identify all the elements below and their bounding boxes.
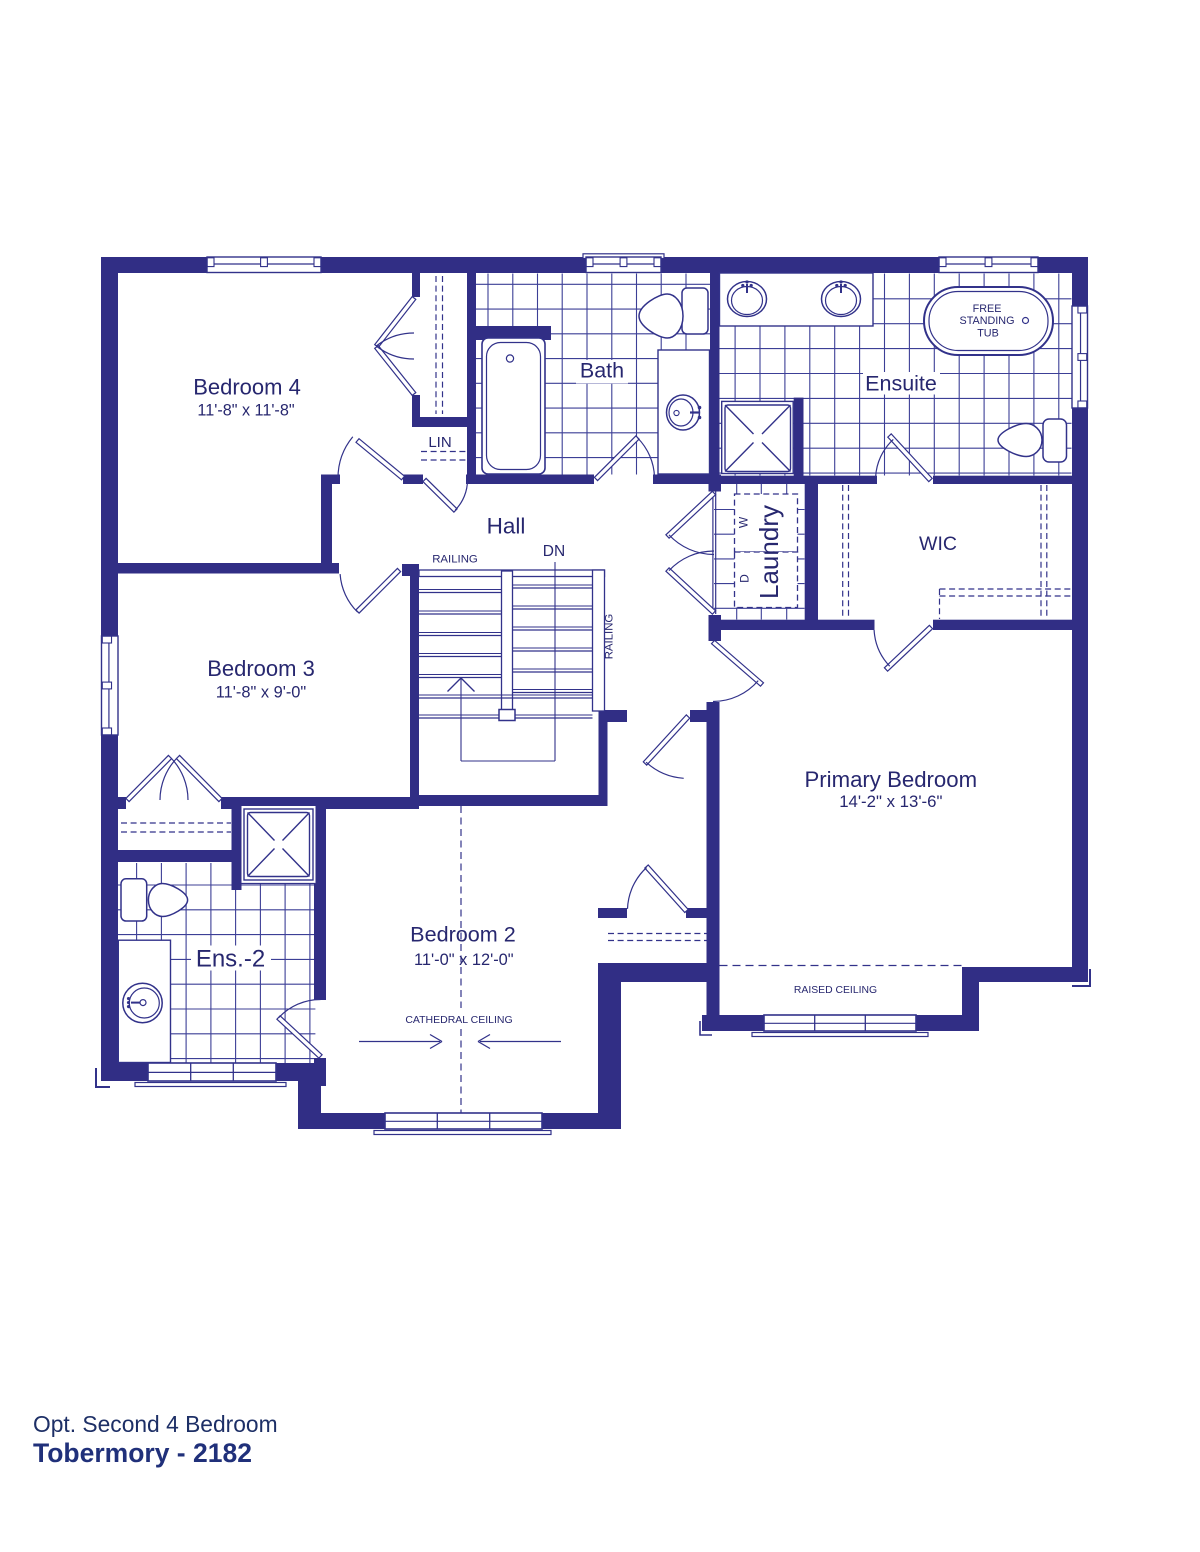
svg-text:14'-2" x 13'-6": 14'-2" x 13'-6"	[839, 792, 942, 811]
svg-text:Primary Bedroom: Primary Bedroom	[804, 767, 977, 792]
svg-text:Laundry: Laundry	[754, 505, 784, 599]
svg-text:WIC: WIC	[919, 533, 957, 555]
svg-text:Bedroom 2: Bedroom 2	[410, 922, 516, 947]
svg-text:RAILING: RAILING	[432, 553, 478, 565]
svg-text:11'-0" x 12'-0": 11'-0" x 12'-0"	[414, 951, 514, 969]
svg-text:RAISED CEILING: RAISED CEILING	[794, 985, 877, 996]
svg-text:Ens.-2: Ens.-2	[196, 946, 265, 973]
svg-text:Hall: Hall	[487, 514, 526, 539]
svg-text:DN: DN	[543, 543, 565, 560]
svg-text:W: W	[737, 516, 751, 528]
svg-text:11'-8" x 11'-8": 11'-8" x 11'-8"	[197, 402, 294, 420]
svg-text:11'-8" x 9'-0": 11'-8" x 9'-0"	[216, 683, 307, 701]
svg-text:Opt. Second 4 Bedroom: Opt. Second 4 Bedroom	[33, 1411, 278, 1437]
svg-text:Bath: Bath	[580, 359, 624, 383]
svg-text:FREE: FREE	[973, 303, 1002, 315]
svg-text:TUB: TUB	[977, 327, 999, 339]
svg-text:Bedroom 3: Bedroom 3	[207, 656, 315, 681]
svg-text:Ensuite: Ensuite	[865, 372, 937, 396]
svg-text:STANDING: STANDING	[960, 315, 1015, 327]
svg-text:Tobermory - 2182: Tobermory - 2182	[33, 1438, 252, 1468]
svg-text:D: D	[738, 574, 752, 583]
svg-text:LIN: LIN	[428, 434, 451, 451]
svg-text:Bedroom 4: Bedroom 4	[193, 375, 301, 400]
svg-text:CATHEDRAL CEILING: CATHEDRAL CEILING	[405, 1014, 512, 1026]
svg-text:RAILING: RAILING	[604, 614, 616, 660]
